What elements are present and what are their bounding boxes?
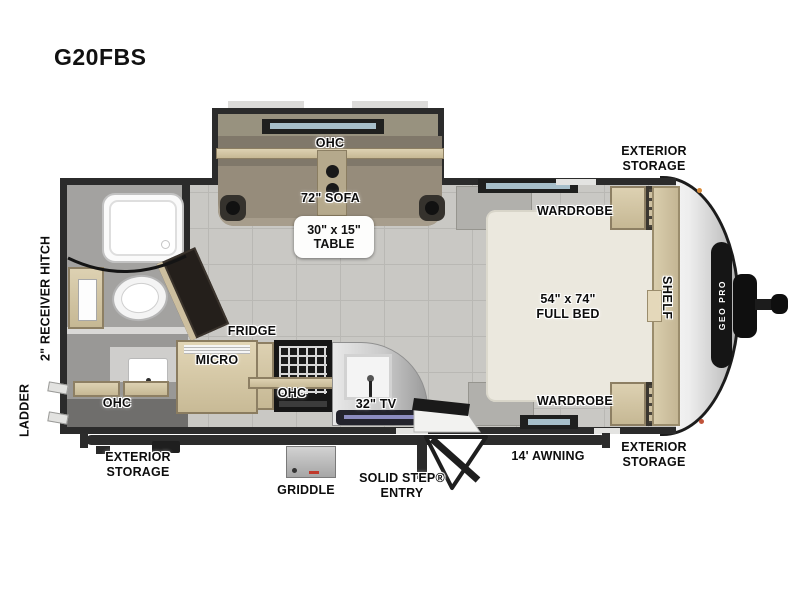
label-ohc-kitchen: OHC	[262, 386, 322, 401]
label-solid-step: SOLID STEP®	[340, 471, 464, 486]
bath-ohc-shelf	[123, 381, 169, 397]
label-fridge: FRIDGE	[213, 324, 291, 339]
label-bed-size: 54" x 74"	[508, 292, 628, 307]
range-stove	[274, 340, 332, 412]
cupholder	[326, 165, 339, 178]
floorplan-canvas: G20FBS	[0, 0, 800, 600]
label-solid-step-entry: SOLID STEP® ENTRY	[340, 471, 464, 501]
wall-trim	[396, 428, 428, 434]
label-sofa: 72" SOFA	[278, 191, 383, 206]
label-wardrobe-bottom: WARDROBE	[527, 394, 623, 409]
label-ohc-bath: OHC	[87, 396, 147, 411]
cap-marker-light	[697, 188, 702, 193]
table-label-size: 30" x 15"	[307, 223, 361, 237]
label-bed-type: FULL BED	[508, 307, 628, 322]
floorplan-title: G20FBS	[54, 44, 146, 71]
tub-drain	[161, 240, 170, 249]
label-receiver-hitch: 2" RECEIVER HITCH	[39, 223, 54, 373]
awning-bracket	[602, 433, 610, 448]
bedroom-window-bottom	[520, 415, 578, 429]
label-wardrobe-top: WARDROBE	[527, 204, 623, 219]
sofa-armrest	[220, 195, 246, 221]
label-shelf: SHELF	[659, 276, 674, 319]
hitch-arm	[755, 299, 775, 310]
bath-ohc-shelf	[73, 381, 120, 397]
label-micro: MICRO	[178, 353, 256, 368]
ladder-hook	[47, 411, 68, 424]
awning-bracket	[80, 433, 88, 448]
label-exterior-storage-front-bottom: EXTERIOR STORAGE	[610, 440, 698, 470]
label-tv: 32" TV	[341, 397, 411, 412]
table-label: TABLE	[314, 237, 355, 251]
cap-marker-light	[699, 419, 704, 424]
sofa-console	[317, 150, 347, 216]
mirror	[78, 279, 97, 321]
hitch-coupler	[771, 294, 788, 314]
medicine-cabinet	[68, 267, 104, 329]
microwave	[176, 340, 258, 414]
label-ladder: LADDER	[18, 370, 33, 450]
label-exterior-storage-rear: EXTERIOR STORAGE	[94, 450, 182, 480]
slideout-window	[262, 119, 384, 134]
dinette-table: 30" x 15" TABLE	[294, 216, 374, 258]
brand-badge-text: GEO PRO	[717, 280, 727, 330]
label-entry: ENTRY	[340, 486, 464, 501]
label-griddle: GRIDDLE	[266, 483, 346, 498]
kitchen-sink	[336, 410, 426, 425]
bathtub	[102, 193, 184, 263]
label-full-bed: 54" x 74" FULL BED	[508, 292, 628, 322]
ladder-hook	[47, 381, 68, 394]
griddle	[286, 446, 336, 478]
wall-trim	[556, 179, 596, 185]
tv	[344, 354, 392, 400]
brand-badge: GEO PRO	[711, 242, 732, 368]
label-exterior-storage-front-top: EXTERIOR STORAGE	[610, 144, 698, 174]
label-awning: 14' AWNING	[496, 449, 600, 464]
label-ohc-slideout: OHC	[300, 136, 360, 151]
sofa-armrest	[419, 195, 445, 221]
